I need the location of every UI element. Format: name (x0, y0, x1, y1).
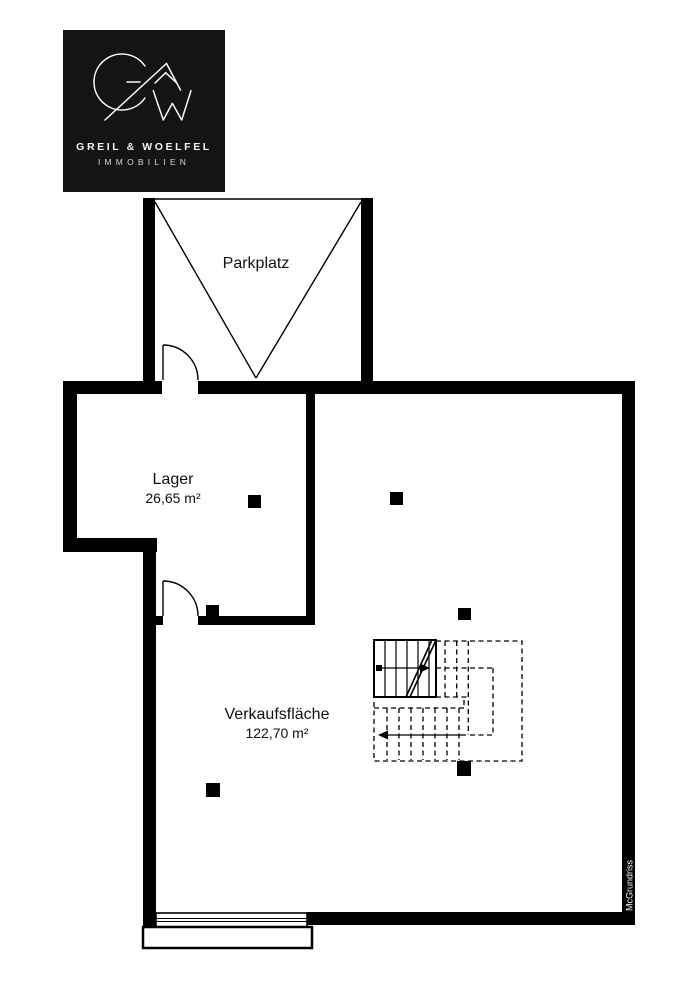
lager-label: Lager (153, 471, 195, 488)
parkplatz-area: Parkplatz (143, 198, 373, 381)
verkaufsflaeche-area-label: 122,70 m² (245, 725, 308, 741)
top-wall-left-segment (63, 381, 162, 394)
left-wall-lower (143, 538, 156, 927)
watermark-text: McGrundriss (625, 859, 635, 911)
lager-door (163, 581, 198, 616)
entrance-window (156, 913, 307, 927)
right-wall (622, 381, 635, 925)
left-wall-upper (63, 381, 77, 552)
staircase (374, 640, 522, 761)
parkplatz-marking (155, 202, 361, 378)
top-wall-right-segment (198, 381, 635, 394)
parkplatz-label: Parkplatz (223, 255, 290, 272)
verkaufsflaeche-label: Verkaufsfläche (225, 706, 330, 723)
interior-wall-stub (155, 616, 163, 625)
lager-area-label: 26,65 m² (145, 490, 201, 506)
verkaufsflaeche-labels: Verkaufsfläche 122,70 m² (225, 706, 330, 741)
building-outer-walls (63, 381, 635, 927)
stair-treads-dashed (387, 708, 459, 760)
bottom-wall (307, 912, 635, 925)
parkplatz-right-wall (361, 198, 373, 381)
stair-down-arrow (378, 731, 466, 740)
pillar-lager (248, 495, 261, 508)
floorplan-page: GREIL & WOELFEL IMMOBILIEN Parkplatz (0, 0, 700, 990)
logo: GREIL & WOELFEL IMMOBILIEN (63, 30, 225, 192)
logo-company-name: GREIL & WOELFEL (76, 141, 212, 153)
parkplatz-door (163, 345, 198, 380)
pillar-lager-door (206, 605, 219, 618)
interior-walls (155, 394, 315, 625)
pillar-top-center (390, 492, 403, 505)
entrance-step (143, 927, 312, 948)
left-wall-jog (63, 538, 157, 552)
interior-wall-vertical (306, 394, 315, 623)
lager-labels: Lager 26,65 m² (145, 471, 201, 506)
lager-door-arc (163, 581, 198, 616)
logo-subtitle: IMMOBILIEN (98, 157, 190, 167)
pillar-below-stairs (457, 761, 471, 776)
parkplatz-left-wall (143, 198, 155, 381)
pillar-mid-right (458, 608, 471, 620)
parkplatz-door-arc (163, 345, 198, 380)
logo-background (63, 30, 225, 192)
pillar-bottom-left (206, 783, 220, 797)
